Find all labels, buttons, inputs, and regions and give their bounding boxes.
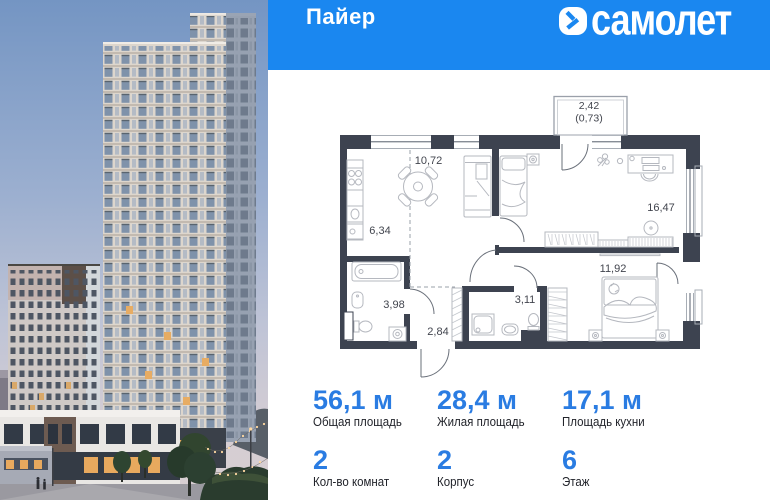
svg-text:2,42: 2,42 bbox=[579, 100, 600, 112]
svg-text:16,47: 16,47 bbox=[647, 202, 675, 214]
svg-text:2,84: 2,84 bbox=[427, 326, 448, 338]
svg-text:3,11: 3,11 bbox=[515, 294, 536, 306]
svg-text:6,34: 6,34 bbox=[369, 225, 390, 237]
svg-text:11,92: 11,92 bbox=[600, 263, 627, 275]
svg-text:3,98: 3,98 bbox=[383, 299, 404, 311]
svg-text:(0,73): (0,73) bbox=[575, 113, 602, 125]
svg-text:10,72: 10,72 bbox=[415, 155, 443, 167]
